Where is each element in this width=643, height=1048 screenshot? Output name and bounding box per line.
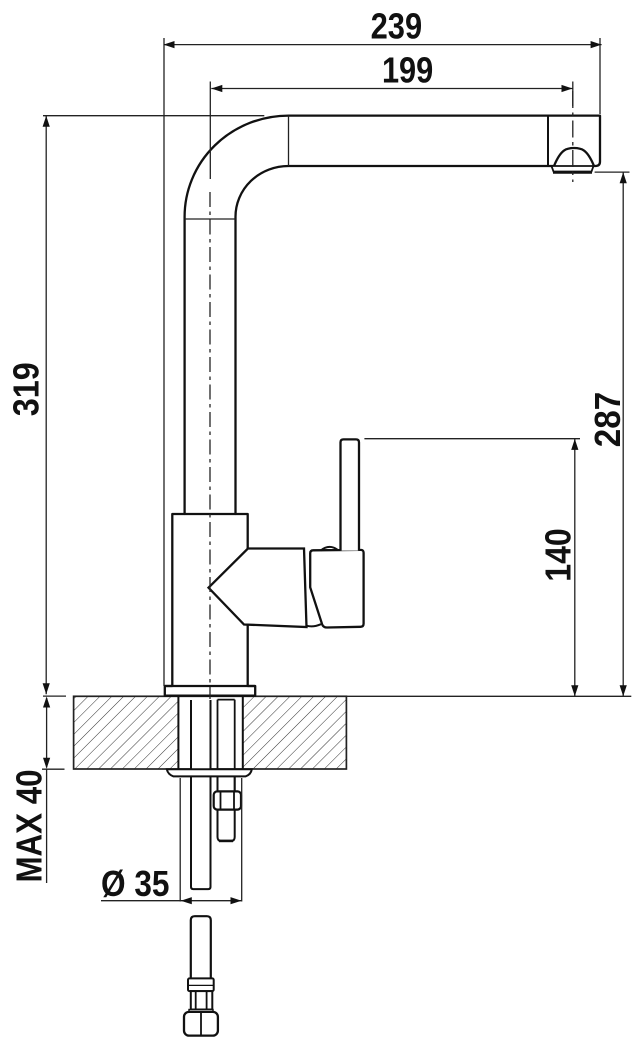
svg-text:140: 140 xyxy=(538,528,579,582)
svg-text:239: 239 xyxy=(371,6,423,47)
svg-text:199: 199 xyxy=(382,50,433,91)
svg-text:MAX 40: MAX 40 xyxy=(9,770,50,883)
svg-text:Ø 35: Ø 35 xyxy=(101,863,170,904)
svg-text:287: 287 xyxy=(587,392,628,448)
svg-text:319: 319 xyxy=(6,362,47,416)
